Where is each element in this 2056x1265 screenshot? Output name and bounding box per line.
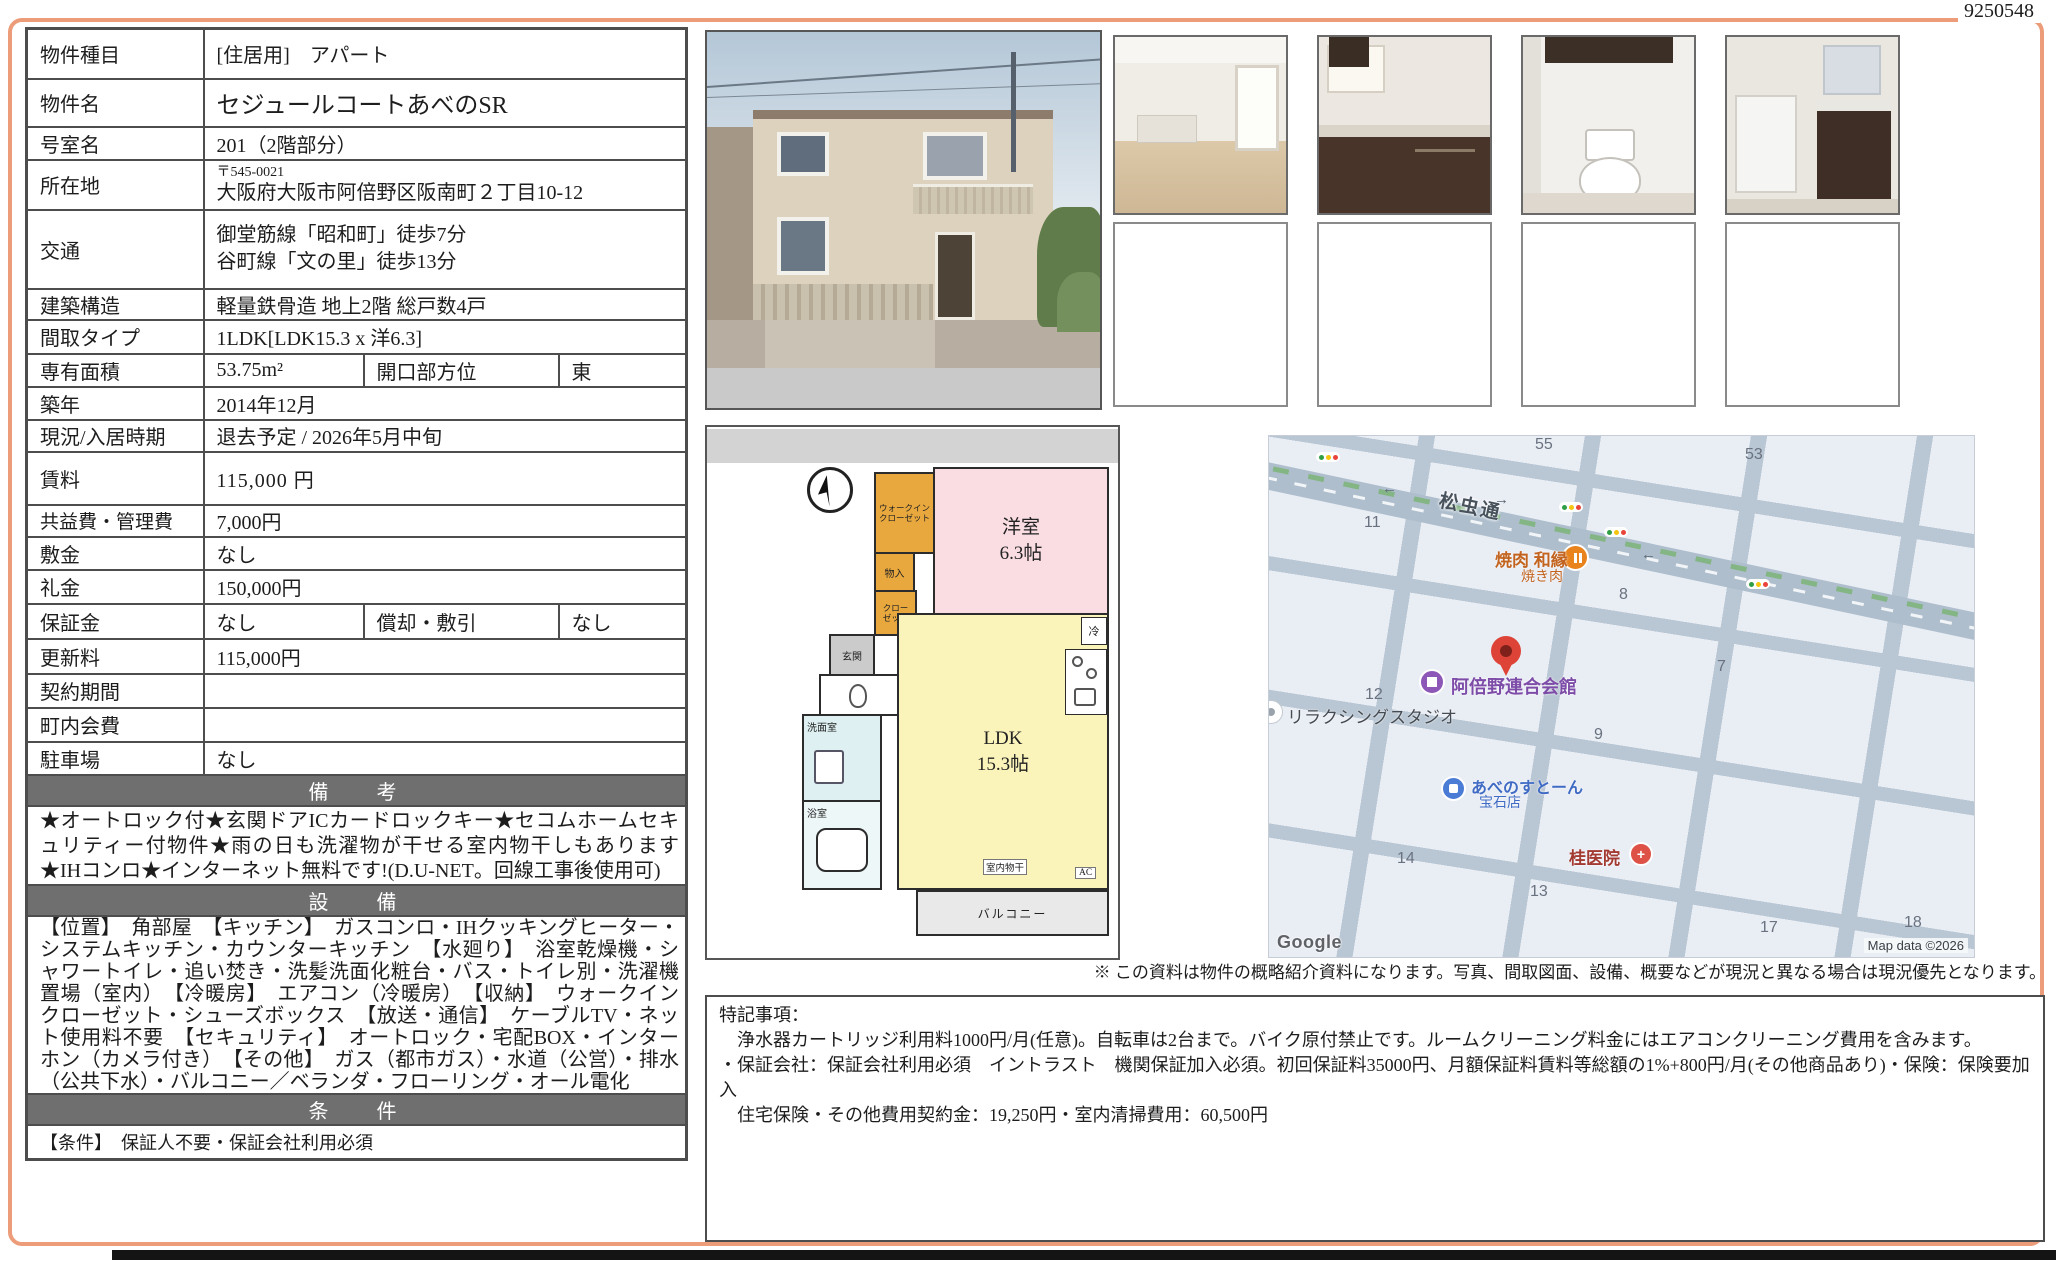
washer-space <box>1735 95 1797 193</box>
field-label: 敷金 <box>27 537 204 570</box>
room-toilet <box>819 674 899 716</box>
washer-icon <box>814 750 844 784</box>
row-layout-type: 間取タイプ 1LDK[LDK15.3 x 洋6.3] <box>27 320 687 354</box>
transit-line-1: 御堂筋線「昭和町」徒歩7分 <box>217 222 680 249</box>
traffic-light-icon <box>1316 452 1340 462</box>
window <box>923 132 987 180</box>
section-remarks: ★オートロック付★玄関ドアICカードロックキー★セコムホームセキュリティー付物件… <box>27 806 687 885</box>
field-label: 間取タイプ <box>27 320 204 354</box>
transit-line-2: 谷町線「文の里」徒歩13分 <box>217 249 680 276</box>
field-label: 賃料 <box>27 452 204 505</box>
counter <box>1137 115 1197 143</box>
postal-code: 〒545-0021 <box>217 165 680 181</box>
field-label: 契約期間 <box>27 674 204 708</box>
counter-top <box>1319 125 1490 137</box>
field-value: なし <box>204 742 687 775</box>
field-value: 150,000円 <box>204 570 687 604</box>
photo-living-room <box>1113 35 1288 215</box>
row-room-number: 号室名 201（2階部分） <box>27 127 687 160</box>
block-number: 53 <box>1745 446 1763 464</box>
shrub <box>1057 272 1102 332</box>
conditions-header: 条 件 <box>27 1094 687 1125</box>
field-value: 東 <box>559 354 687 387</box>
block-number: 13 <box>1530 883 1548 901</box>
field-label: 交通 <box>27 210 204 289</box>
fridge-spot: 冷 <box>1081 617 1107 645</box>
poi-label-kaikan: 阿倍野連合会館 <box>1451 673 1577 699</box>
photo-exterior <box>705 30 1102 410</box>
cabinet-handle <box>1415 149 1475 152</box>
row-property-name: 物件名 セジュールコートあべのSR <box>27 79 687 127</box>
window <box>777 217 829 275</box>
washroom-label: 洗面室 <box>807 719 837 734</box>
toilet-icon <box>849 684 867 708</box>
field-label: 建築構造 <box>27 289 204 320</box>
sink-icon <box>1074 688 1096 706</box>
ceiling <box>1115 37 1286 63</box>
field-value: [住居用] アパート <box>204 29 687 79</box>
poi-label-clinic: 桂医院 <box>1569 844 1620 869</box>
row-key-money: 礼金 150,000円 <box>27 570 687 604</box>
field-value: 201（2階部分） <box>204 127 687 160</box>
field-value: 退去予定 / 2026年5月中旬 <box>204 420 687 452</box>
row-rent: 賃料 115,000 円 <box>27 452 687 505</box>
utility-pole <box>1011 52 1016 172</box>
field-label: 駐車場 <box>27 742 204 775</box>
block-number: 55 <box>1535 436 1553 454</box>
property-location-pin <box>1491 636 1521 666</box>
photo-placeholder <box>1521 222 1696 407</box>
field-label: 現況/入居時期 <box>27 420 204 452</box>
google-logo: Google <box>1277 932 1342 953</box>
floor <box>1727 199 1898 215</box>
field-value <box>204 674 687 708</box>
balcony-rail <box>913 184 1033 214</box>
field-value: 軽量鉄骨造 地上2階 総戸数4戸 <box>204 289 687 320</box>
section-header-equipment: 設 備 <box>27 885 687 916</box>
block-number: 9 <box>1594 726 1603 744</box>
conditions-text: 【条件】 保証人不要・保証会社利用必須 <box>27 1125 687 1160</box>
community-hall-icon <box>1419 669 1445 695</box>
field-label: 築年 <box>27 387 204 420</box>
special-notes-title: 特記事項： <box>719 1003 2031 1028</box>
range-hood <box>1329 37 1369 67</box>
field-value: 2014年12月 <box>204 387 687 420</box>
clinic-icon: + <box>1629 842 1653 866</box>
field-label: 物件名 <box>27 79 204 127</box>
block-number: 11 <box>1364 514 1381 532</box>
window <box>1235 65 1279 151</box>
field-label: 更新料 <box>27 639 204 674</box>
ac-label: AC <box>1075 867 1096 879</box>
fence <box>753 284 933 322</box>
row-renewal-fee: 更新料 115,000円 <box>27 639 687 674</box>
kitchen-counter <box>1065 649 1107 715</box>
field-label: 専有面積 <box>27 354 204 387</box>
room-entrance: 玄関 <box>829 634 875 676</box>
map-attribution: Map data ©2026 <box>1864 938 1968 953</box>
field-label: 礼金 <box>27 570 204 604</box>
field-label: 償却・敷引 <box>364 604 559 639</box>
balcony: バルコニー <box>916 890 1109 936</box>
field-value: なし <box>559 604 687 639</box>
block-number: 8 <box>1619 586 1628 604</box>
section-equipment: 【位置】 角部屋 【キッチン】 ガスコンロ・IHクッキングヒーター・システムキッ… <box>27 916 687 1094</box>
bath-label: 浴室 <box>807 805 827 820</box>
row-parking: 駐車場 なし <box>27 742 687 775</box>
field-label: 町内会費 <box>27 708 204 742</box>
row-built-year: 築年 2014年12月 <box>27 387 687 420</box>
traffic-light-icon <box>1604 527 1628 537</box>
row-area-direction: 専有面積 53.75m² 開口部方位 東 <box>27 354 687 387</box>
studio-icon <box>1268 700 1283 724</box>
block-number: 7 <box>1717 658 1726 676</box>
wall-panel <box>1523 37 1541 215</box>
equipment-header: 設 備 <box>27 885 687 916</box>
disclaimer-note: ※ この資料は物件の概略紹介資料になります。写真、間取図面、設備、概要などが現況… <box>1094 958 2046 983</box>
floor-plan: ウォークイン クローゼット 洋室 6.3帖 物入 クロー ゼット 玄関 洗面室 … <box>705 425 1120 960</box>
compass-icon <box>807 467 853 513</box>
driveway <box>765 320 935 370</box>
field-label: 共益費・管理費 <box>27 505 204 537</box>
field-label: 号室名 <box>27 127 204 160</box>
section-header-remarks: 備 考 <box>27 775 687 806</box>
row-deposit: 敷金 なし <box>27 537 687 570</box>
field-value: 115,000円 <box>204 639 687 674</box>
field-value: 1LDK[LDK15.3 x 洋6.3] <box>204 320 687 354</box>
photo-washroom <box>1725 35 1900 215</box>
cabinet-handle <box>1333 149 1393 152</box>
sink-top <box>1817 99 1891 111</box>
poi-label-studio: リラクシングスタジオ <box>1287 703 1457 728</box>
bottom-scan-bar <box>112 1250 2056 1260</box>
rent-value: 115,000 円 <box>204 452 687 505</box>
field-value <box>204 708 687 742</box>
row-contract-term: 契約期間 <box>27 674 687 708</box>
photo-placeholder <box>1317 222 1492 407</box>
row-transit: 交通 御堂筋線「昭和町」徒歩7分 谷町線「文の里」徒歩13分 <box>27 210 687 289</box>
photo-kitchen <box>1317 35 1492 215</box>
field-value: セジュールコートあべのSR <box>204 79 687 127</box>
field-value: 御堂筋線「昭和町」徒歩7分 谷町線「文の里」徒歩13分 <box>204 210 687 289</box>
field-label: 保証金 <box>27 604 204 639</box>
arrow-left-icon: ← <box>1382 480 1397 497</box>
burner-icon <box>1086 668 1097 679</box>
block-number: 17 <box>1760 919 1778 937</box>
traffic-light-icon <box>1559 502 1583 512</box>
field-value: 7,000円 <box>204 505 687 537</box>
field-value: なし <box>204 537 687 570</box>
row-town-fee: 町内会費 <box>27 708 687 742</box>
special-notes-line: ・保証会社：保証会社利用必須 イントラスト 機関保証加入必須。初回保証料3500… <box>719 1053 2031 1103</box>
floor <box>1115 141 1286 215</box>
indoor-drying-label: 室内物干 <box>983 859 1027 875</box>
main-road <box>1268 456 1975 649</box>
block-number: 14 <box>1397 850 1415 868</box>
room-bath: 浴室 <box>802 800 882 890</box>
field-label: 所在地 <box>27 160 204 210</box>
bathtub-icon <box>816 828 868 872</box>
special-notes-box: 特記事項： 浄水器カートリッジ利用料1000円/月(任意)。自転車は2台まで。バ… <box>705 995 2045 1242</box>
row-status-movein: 現況/入居時期 退去予定 / 2026年5月中旬 <box>27 420 687 452</box>
row-guarantee: 保証金 なし 償却・敷引 なし <box>27 604 687 639</box>
neighbor-building <box>707 127 753 322</box>
room-western: 洋室 6.3帖 <box>933 467 1109 615</box>
poi-label-yakiniku-sub: 焼き肉 <box>1521 566 1563 586</box>
scan-strip <box>707 429 1118 463</box>
photo-placeholder <box>1725 222 1900 407</box>
traffic-light-icon <box>1746 579 1770 589</box>
room-walkin-closet: ウォークイン クローゼット <box>874 472 935 554</box>
photo-toilet <box>1521 35 1696 215</box>
property-sheet: 9250548 物件種目 [住居用] アパート 物件名 セジュールコートあべのS… <box>0 0 2056 1265</box>
block-number: 12 <box>1365 686 1383 704</box>
field-value: 〒545-0021 大阪府大阪市阿倍野区阪南町２丁目10-12 <box>204 160 687 210</box>
shelf <box>1545 37 1673 63</box>
block-number: 18 <box>1904 914 1922 932</box>
window <box>777 132 829 176</box>
row-address: 所在地 〒545-0021 大阪府大阪市阿倍野区阪南町２丁目10-12 <box>27 160 687 210</box>
row-structure: 建築構造 軽量鉄骨造 地上2階 総戸数4戸 <box>27 289 687 320</box>
jewelry-shop-icon <box>1441 776 1466 801</box>
scan-strip <box>707 368 1100 410</box>
remarks-header: 備 考 <box>27 775 687 806</box>
arrow-right-icon: → <box>1494 491 1509 508</box>
map: 松虫通 ← → ← 55 53 11 8 7 12 9 14 13 17 18 … <box>1268 435 1975 958</box>
field-value: なし <box>204 604 364 639</box>
remarks-text: ★オートロック付★玄関ドアICカードロックキー★セコムホームセキュリティー付物件… <box>27 806 687 885</box>
field-value: 53.75m² <box>204 354 364 387</box>
address-text: 大阪府大阪市阿倍野区阪南町２丁目10-12 <box>217 181 680 206</box>
section-header-conditions: 条 件 <box>27 1094 687 1125</box>
room-washroom: 洗面室 <box>802 714 882 802</box>
document-number: 9250548 <box>1958 0 2040 23</box>
mirror <box>1823 45 1881 95</box>
entrance-door <box>935 232 975 320</box>
equipment-text: 【位置】 角部屋 【キッチン】 ガスコンロ・IHクッキングヒーター・システムキッ… <box>27 916 687 1094</box>
row-property-type: 物件種目 [住居用] アパート <box>27 29 687 79</box>
photo-placeholder <box>1113 222 1288 407</box>
field-label: 開口部方位 <box>364 354 559 387</box>
arrow-left-icon: ← <box>1641 546 1656 563</box>
field-label: 物件種目 <box>27 29 204 79</box>
room-storage: 物入 <box>874 552 915 592</box>
burner-icon <box>1072 656 1083 667</box>
section-conditions: 【条件】 保証人不要・保証会社利用必須 <box>27 1125 687 1160</box>
special-notes-line: 住宅保険・その他費用契約金：19,250円・室内清掃費用：60,500円 <box>719 1103 2031 1128</box>
floor <box>1523 193 1694 215</box>
property-detail-table: 物件種目 [住居用] アパート 物件名 セジュールコートあべのSR 号室名 20… <box>25 27 688 1161</box>
special-notes-line: 浄水器カートリッジ利用料1000円/月(任意)。自転車は2台まで。バイク原付禁止… <box>719 1028 2031 1053</box>
row-common-fee: 共益費・管理費 7,000円 <box>27 505 687 537</box>
poi-label-stone-sub: 宝石店 <box>1479 792 1521 812</box>
